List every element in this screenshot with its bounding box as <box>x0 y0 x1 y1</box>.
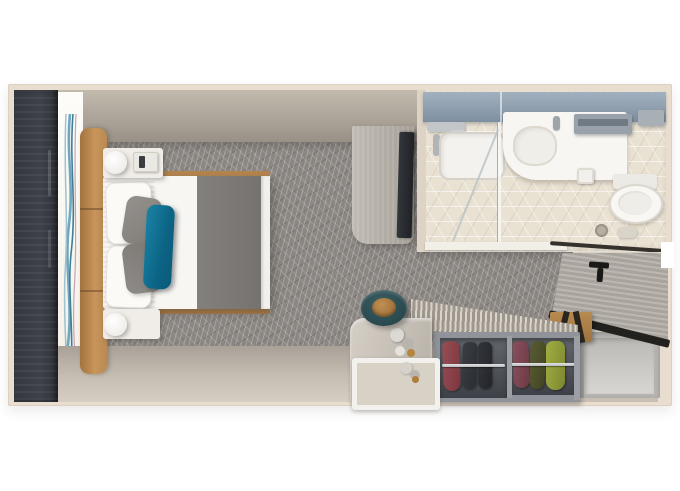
amber-bottle <box>407 349 415 357</box>
bathroom-glass-wall <box>425 242 567 250</box>
wardrobe-divider <box>507 336 512 398</box>
stool <box>361 290 407 326</box>
shower-glass-panel <box>497 122 501 250</box>
tv-cabinet <box>352 126 414 244</box>
phone-handset <box>139 156 145 168</box>
towel-shelf-rail <box>578 119 628 126</box>
bathroom-wall-shadow <box>417 252 575 262</box>
tv-panel <box>397 132 415 238</box>
pillow-teal-accent <box>143 204 175 289</box>
mirror-seam <box>500 92 502 122</box>
wall-opening <box>661 242 674 268</box>
bed-fold <box>261 176 270 309</box>
toilet <box>609 184 663 224</box>
wall-art <box>59 114 81 382</box>
window-highlight <box>48 150 51 196</box>
toilet-seat <box>618 191 652 215</box>
window-highlight <box>48 230 51 268</box>
hanging-rail-2 <box>511 363 575 366</box>
desk <box>350 318 432 402</box>
balcony-window-band <box>14 90 58 402</box>
wardrobe <box>434 332 580 402</box>
wardrobe-side <box>574 336 580 400</box>
towel-shelf-small <box>638 110 664 126</box>
towel-shelf <box>574 114 632 134</box>
sink-basin <box>513 126 557 166</box>
waste-bin <box>595 224 608 237</box>
bed-runner <box>197 176 261 309</box>
cabinet-interior <box>584 338 654 394</box>
stateroom-floor-plan <box>0 0 680 491</box>
pullout-tray <box>352 358 440 410</box>
flower-bloom <box>395 346 405 356</box>
toilet-brush <box>617 227 637 238</box>
bathroom <box>417 90 666 252</box>
door-handle <box>597 268 604 282</box>
cabin-phone <box>133 152 158 172</box>
stool-seat <box>372 298 396 317</box>
table-lamp-top <box>104 151 127 174</box>
table-lamp-bottom <box>104 313 127 336</box>
amber-bottle <box>412 376 419 383</box>
hanging-rail-1 <box>442 364 505 367</box>
toilet-paper-holder <box>577 168 594 184</box>
faucet <box>553 116 560 130</box>
